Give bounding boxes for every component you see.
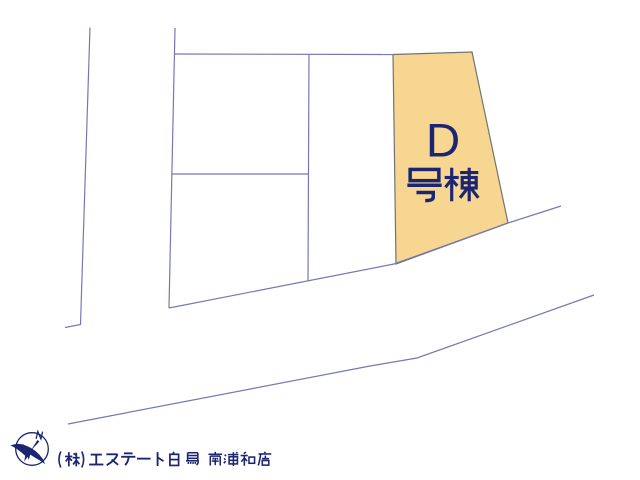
svg-text:D: D [426,115,460,168]
